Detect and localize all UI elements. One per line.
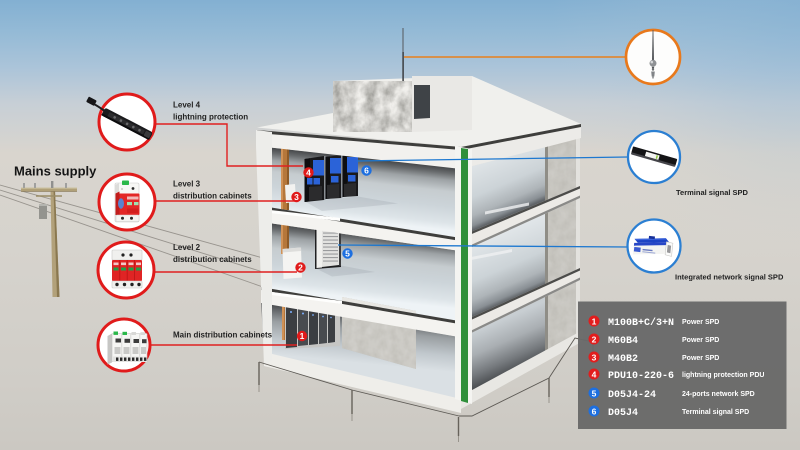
svg-text:4: 4: [592, 369, 597, 379]
svg-text:PDU10-220-6: PDU10-220-6: [608, 371, 674, 382]
svg-text:Level 3: Level 3: [173, 180, 201, 189]
svg-text:distribution cabinets: distribution cabinets: [173, 255, 252, 264]
svg-text:6: 6: [592, 406, 597, 416]
svg-text:M60B4: M60B4: [608, 336, 638, 347]
svg-text:D05J4: D05J4: [608, 408, 638, 419]
svg-text:3: 3: [592, 352, 597, 362]
svg-text:2: 2: [298, 263, 303, 273]
svg-text:Integrated network signal SPD: Integrated network signal SPD: [675, 273, 784, 282]
svg-text:Power SPD: Power SPD: [682, 337, 719, 344]
svg-text:1: 1: [300, 331, 305, 341]
svg-text:Terminal signal SPD: Terminal signal SPD: [682, 409, 749, 416]
svg-text:M40B2: M40B2: [608, 354, 638, 365]
svg-text:D05J4-24: D05J4-24: [608, 390, 656, 401]
svg-text:3: 3: [294, 192, 299, 202]
svg-text:5: 5: [592, 388, 597, 398]
svg-text:Mains supply: Mains supply: [14, 164, 97, 179]
svg-text:lightning protection PDU: lightning protection PDU: [682, 372, 764, 379]
svg-text:distribution cabinets: distribution cabinets: [173, 192, 252, 201]
svg-text:Level 2: Level 2: [173, 243, 201, 252]
svg-text:Terminal signal SPD: Terminal signal SPD: [676, 188, 749, 197]
svg-text:M100B+C/3+N: M100B+C/3+N: [608, 317, 674, 329]
svg-text:Level 4: Level 4: [173, 101, 201, 110]
svg-text:24-ports network SPD: 24-ports network SPD: [682, 391, 755, 398]
svg-text:Main distribution cabinets: Main distribution cabinets: [173, 331, 273, 340]
svg-text:lightning protection: lightning protection: [173, 113, 248, 122]
svg-text:4: 4: [306, 168, 311, 178]
svg-text:1: 1: [592, 316, 597, 326]
svg-text:Power SPD: Power SPD: [682, 319, 719, 326]
svg-text:6: 6: [364, 166, 369, 176]
svg-text:2: 2: [592, 334, 597, 344]
svg-text:Power SPD: Power SPD: [682, 355, 719, 362]
svg-text:5: 5: [345, 249, 350, 259]
